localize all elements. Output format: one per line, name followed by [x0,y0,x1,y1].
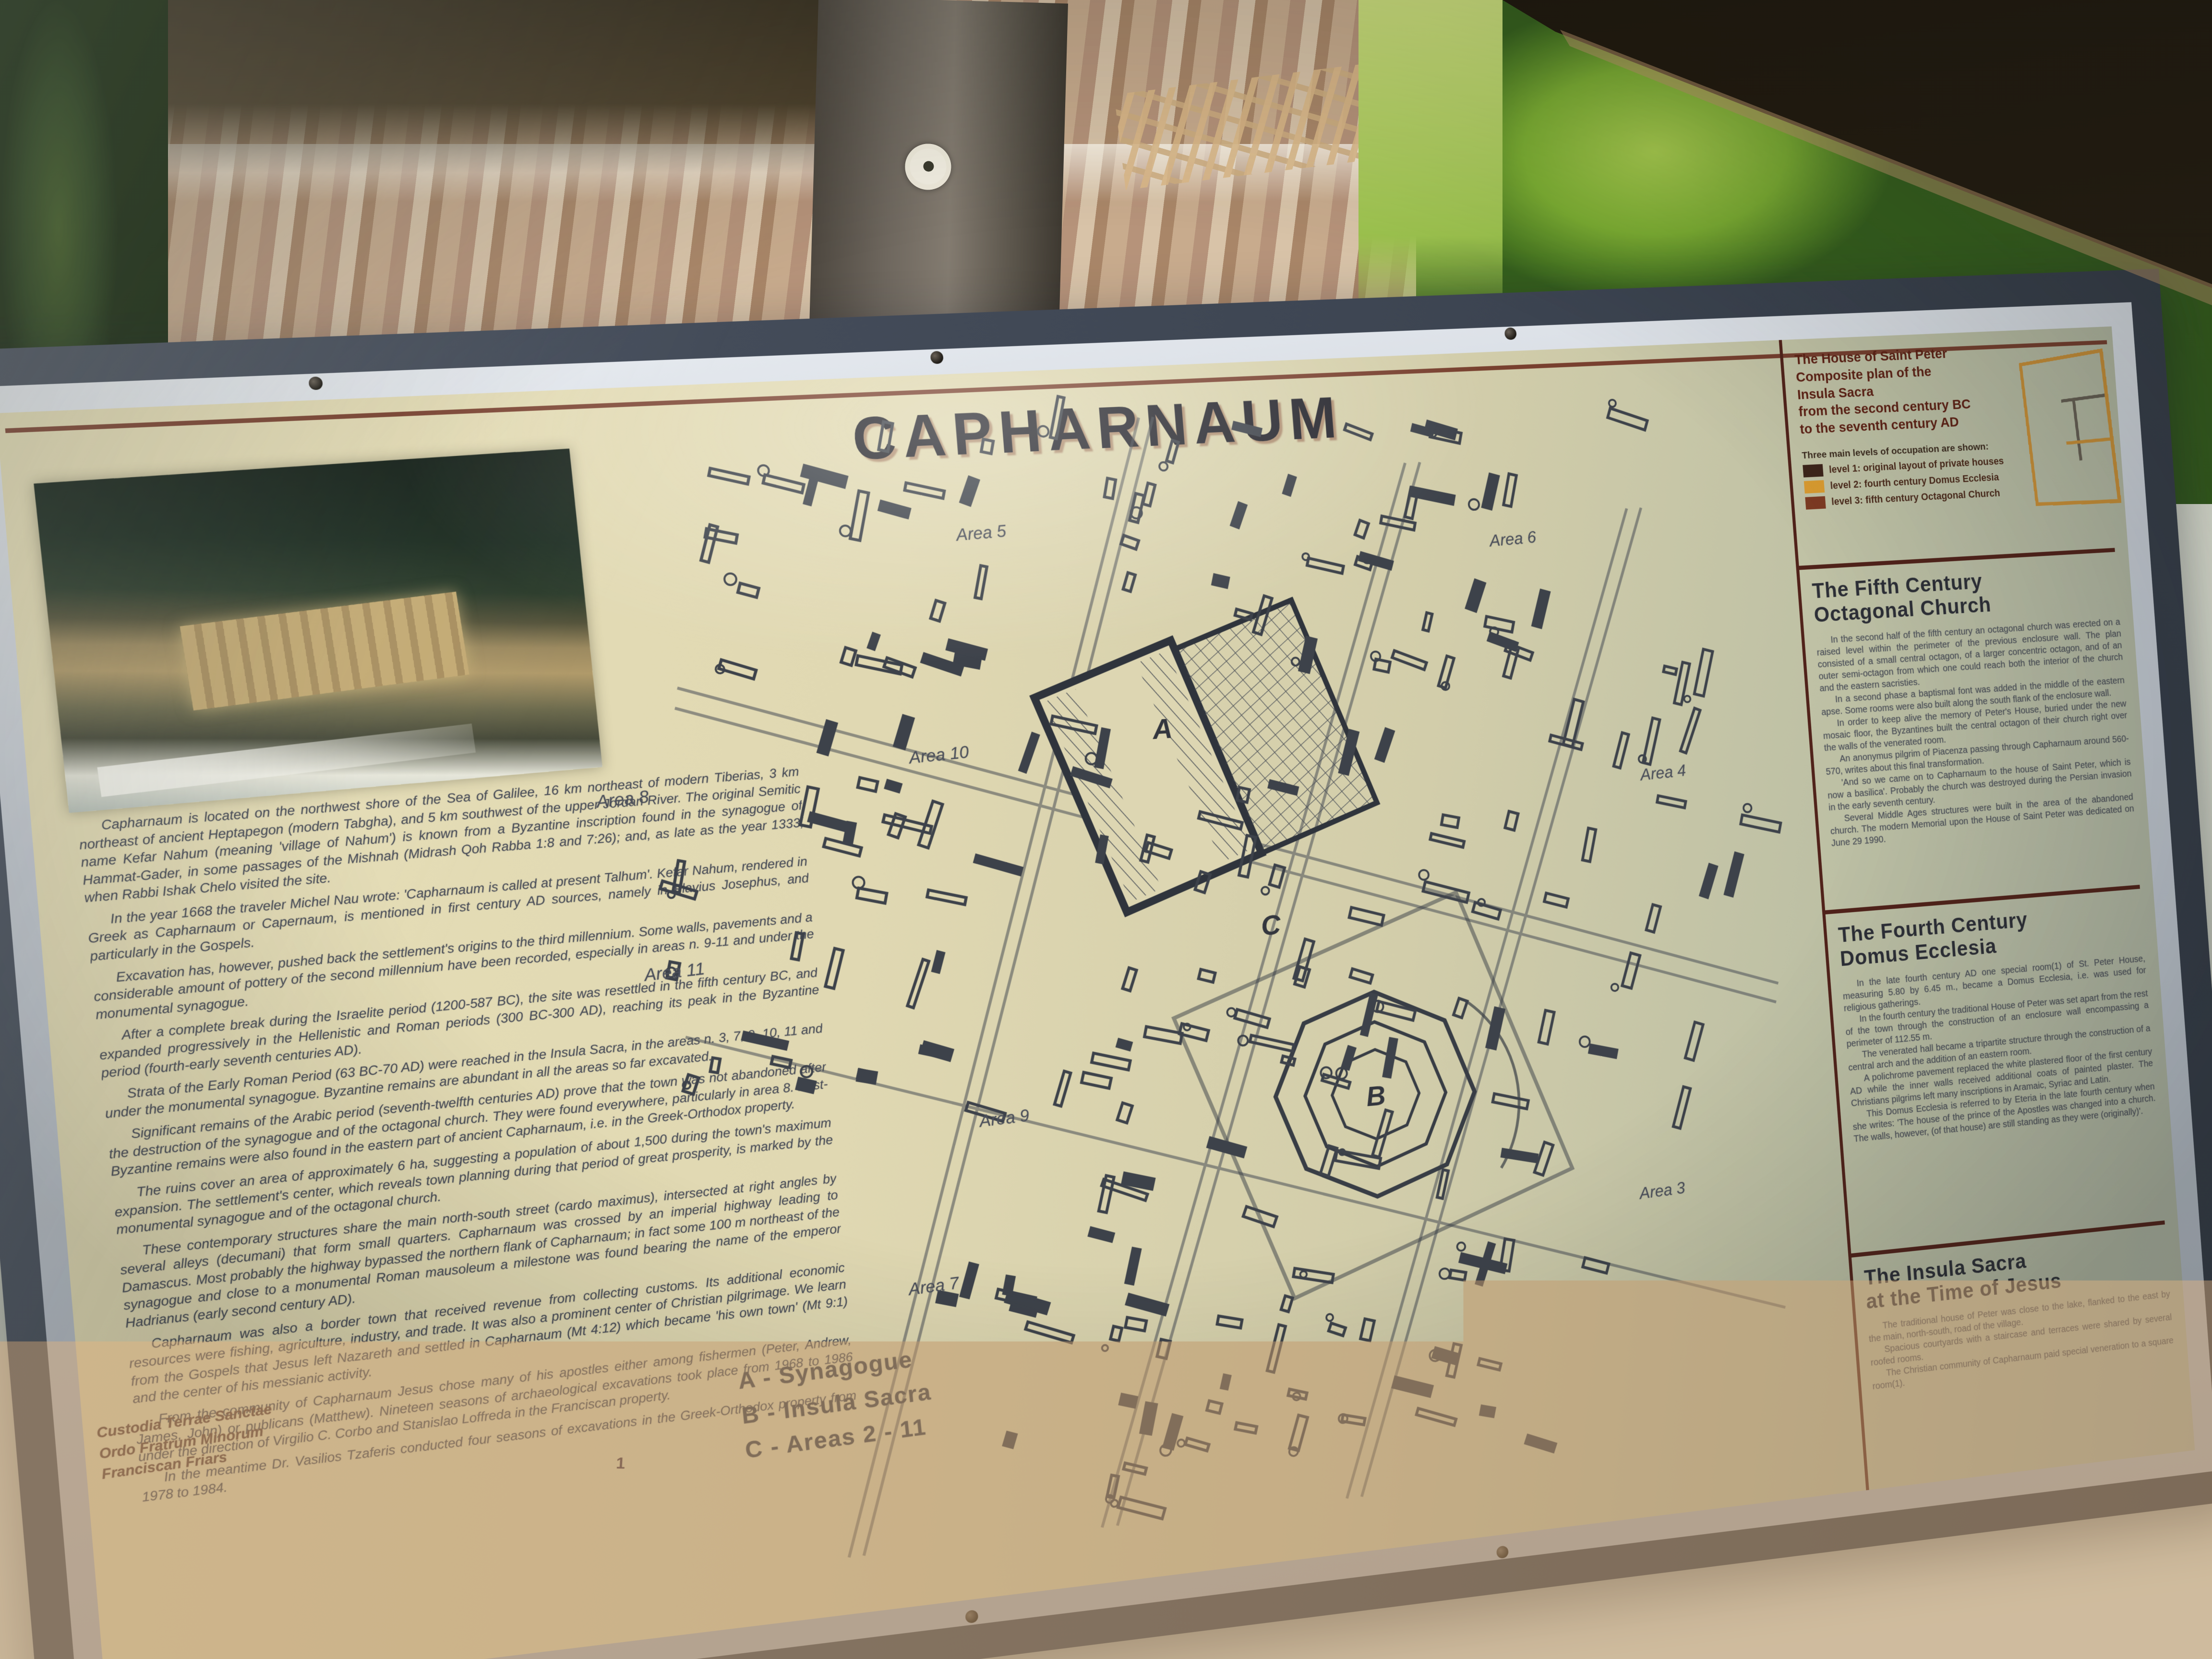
screw-icon [930,351,944,364]
plan-letter-marker: B [1365,1080,1387,1113]
section-heading: The Fifth CenturyOctagonal Church [1811,562,2119,626]
color-swatch-icon [1803,464,1823,478]
insula-plan-thumbnail [2019,349,2121,506]
trunk-marker-disc [904,143,952,191]
color-swatch-icon [1805,496,1826,510]
camera-datestamp: 07/08/201403:45 [1519,1379,2156,1465]
sidebar-column: The House of Saint PeterComposite plan o… [1779,327,2185,1491]
section-body: In the second half of the fifth century … [1815,616,2135,850]
section-house-of-saint-peter: The House of Saint PeterComposite plan o… [1794,339,2114,556]
aerial-photo-inset [34,448,602,813]
screw-icon [965,1610,978,1623]
screw-icon [1496,1545,1508,1559]
color-swatch-icon [1804,480,1825,493]
screw-icon [1504,327,1517,340]
section-insula-sacra: The Insula Sacraat the Time of Jesus The… [1863,1234,2176,1403]
page-number: 1 [615,1454,625,1473]
section-fifth-century-church: The Fifth CenturyOctagonal Church In the… [1811,562,2139,900]
screw-icon [308,376,323,390]
photo-scene: CAPHARNAUM Capharnaum is located on the … [0,0,2212,1659]
datestamp-time: 03:45 [1956,1379,2156,1465]
datestamp-date: 07/08/2014 [1519,1379,1921,1465]
plan-letter-marker: C [1260,908,1282,942]
section-fourth-century-domus: The Fourth CenturyDomus Ecclesia In the … [1838,899,2164,1243]
plan-letter-marker: A [1151,712,1174,745]
section-body: In the late fourth century AD one specia… [1841,953,2157,1145]
